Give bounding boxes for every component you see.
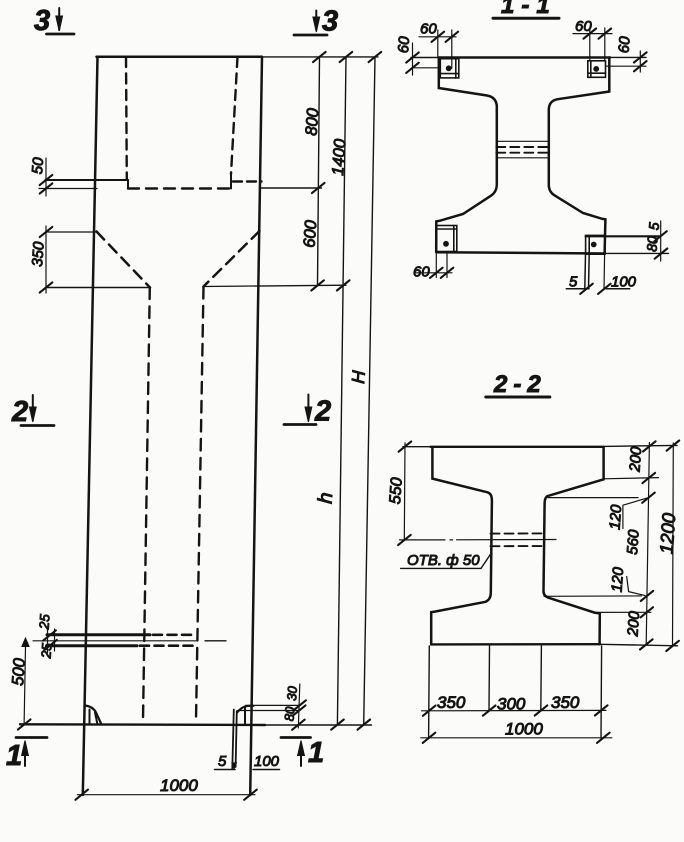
svg-text:120: 120 (607, 503, 626, 530)
svg-text:h: h (315, 492, 338, 505)
svg-text:100: 100 (611, 274, 637, 291)
svg-text:3: 3 (322, 6, 338, 38)
svg-text:1000: 1000 (160, 776, 198, 795)
svg-text:ОТВ. ф 50: ОТВ. ф 50 (407, 552, 480, 569)
svg-text:5: 5 (218, 753, 227, 770)
svg-text:60: 60 (395, 35, 413, 53)
svg-text:600: 600 (301, 219, 321, 249)
svg-text:100: 100 (254, 753, 280, 770)
svg-text:60: 60 (413, 264, 430, 281)
svg-text:1400: 1400 (329, 138, 350, 177)
svg-text:550: 550 (387, 477, 406, 505)
svg-text:350: 350 (437, 693, 466, 712)
svg-text:80: 80 (282, 705, 298, 721)
svg-text:2: 2 (11, 396, 28, 428)
svg-text:800: 800 (303, 107, 323, 137)
svg-text:25: 25 (36, 613, 52, 631)
svg-text:5: 5 (569, 274, 578, 291)
svg-text:60: 60 (575, 18, 592, 35)
svg-text:60: 60 (420, 21, 437, 38)
svg-text:3: 3 (34, 5, 50, 37)
svg-text:60: 60 (616, 35, 634, 53)
svg-text:1: 1 (6, 740, 22, 772)
svg-text:200: 200 (624, 610, 643, 638)
svg-text:1: 1 (308, 737, 324, 769)
svg-text:80: 80 (644, 235, 661, 252)
svg-text:1000: 1000 (505, 720, 543, 739)
svg-text:350: 350 (551, 693, 580, 712)
svg-text:200: 200 (626, 445, 645, 473)
svg-text:H: H (348, 369, 369, 384)
svg-text:2: 2 (314, 396, 331, 428)
svg-text:120: 120 (609, 566, 628, 593)
svg-text:30: 30 (284, 685, 300, 701)
svg-text:300: 300 (497, 695, 526, 714)
svg-text:50: 50 (29, 156, 47, 174)
svg-text:1-1: 1-1 (501, 0, 557, 19)
svg-text:2-2: 2-2 (493, 371, 547, 398)
svg-text:1200: 1200 (656, 512, 680, 555)
svg-text:5: 5 (646, 222, 663, 231)
svg-text:25: 25 (38, 642, 54, 660)
svg-text:500: 500 (9, 657, 29, 687)
svg-text:560: 560 (624, 528, 643, 555)
svg-text:350: 350 (29, 240, 48, 267)
